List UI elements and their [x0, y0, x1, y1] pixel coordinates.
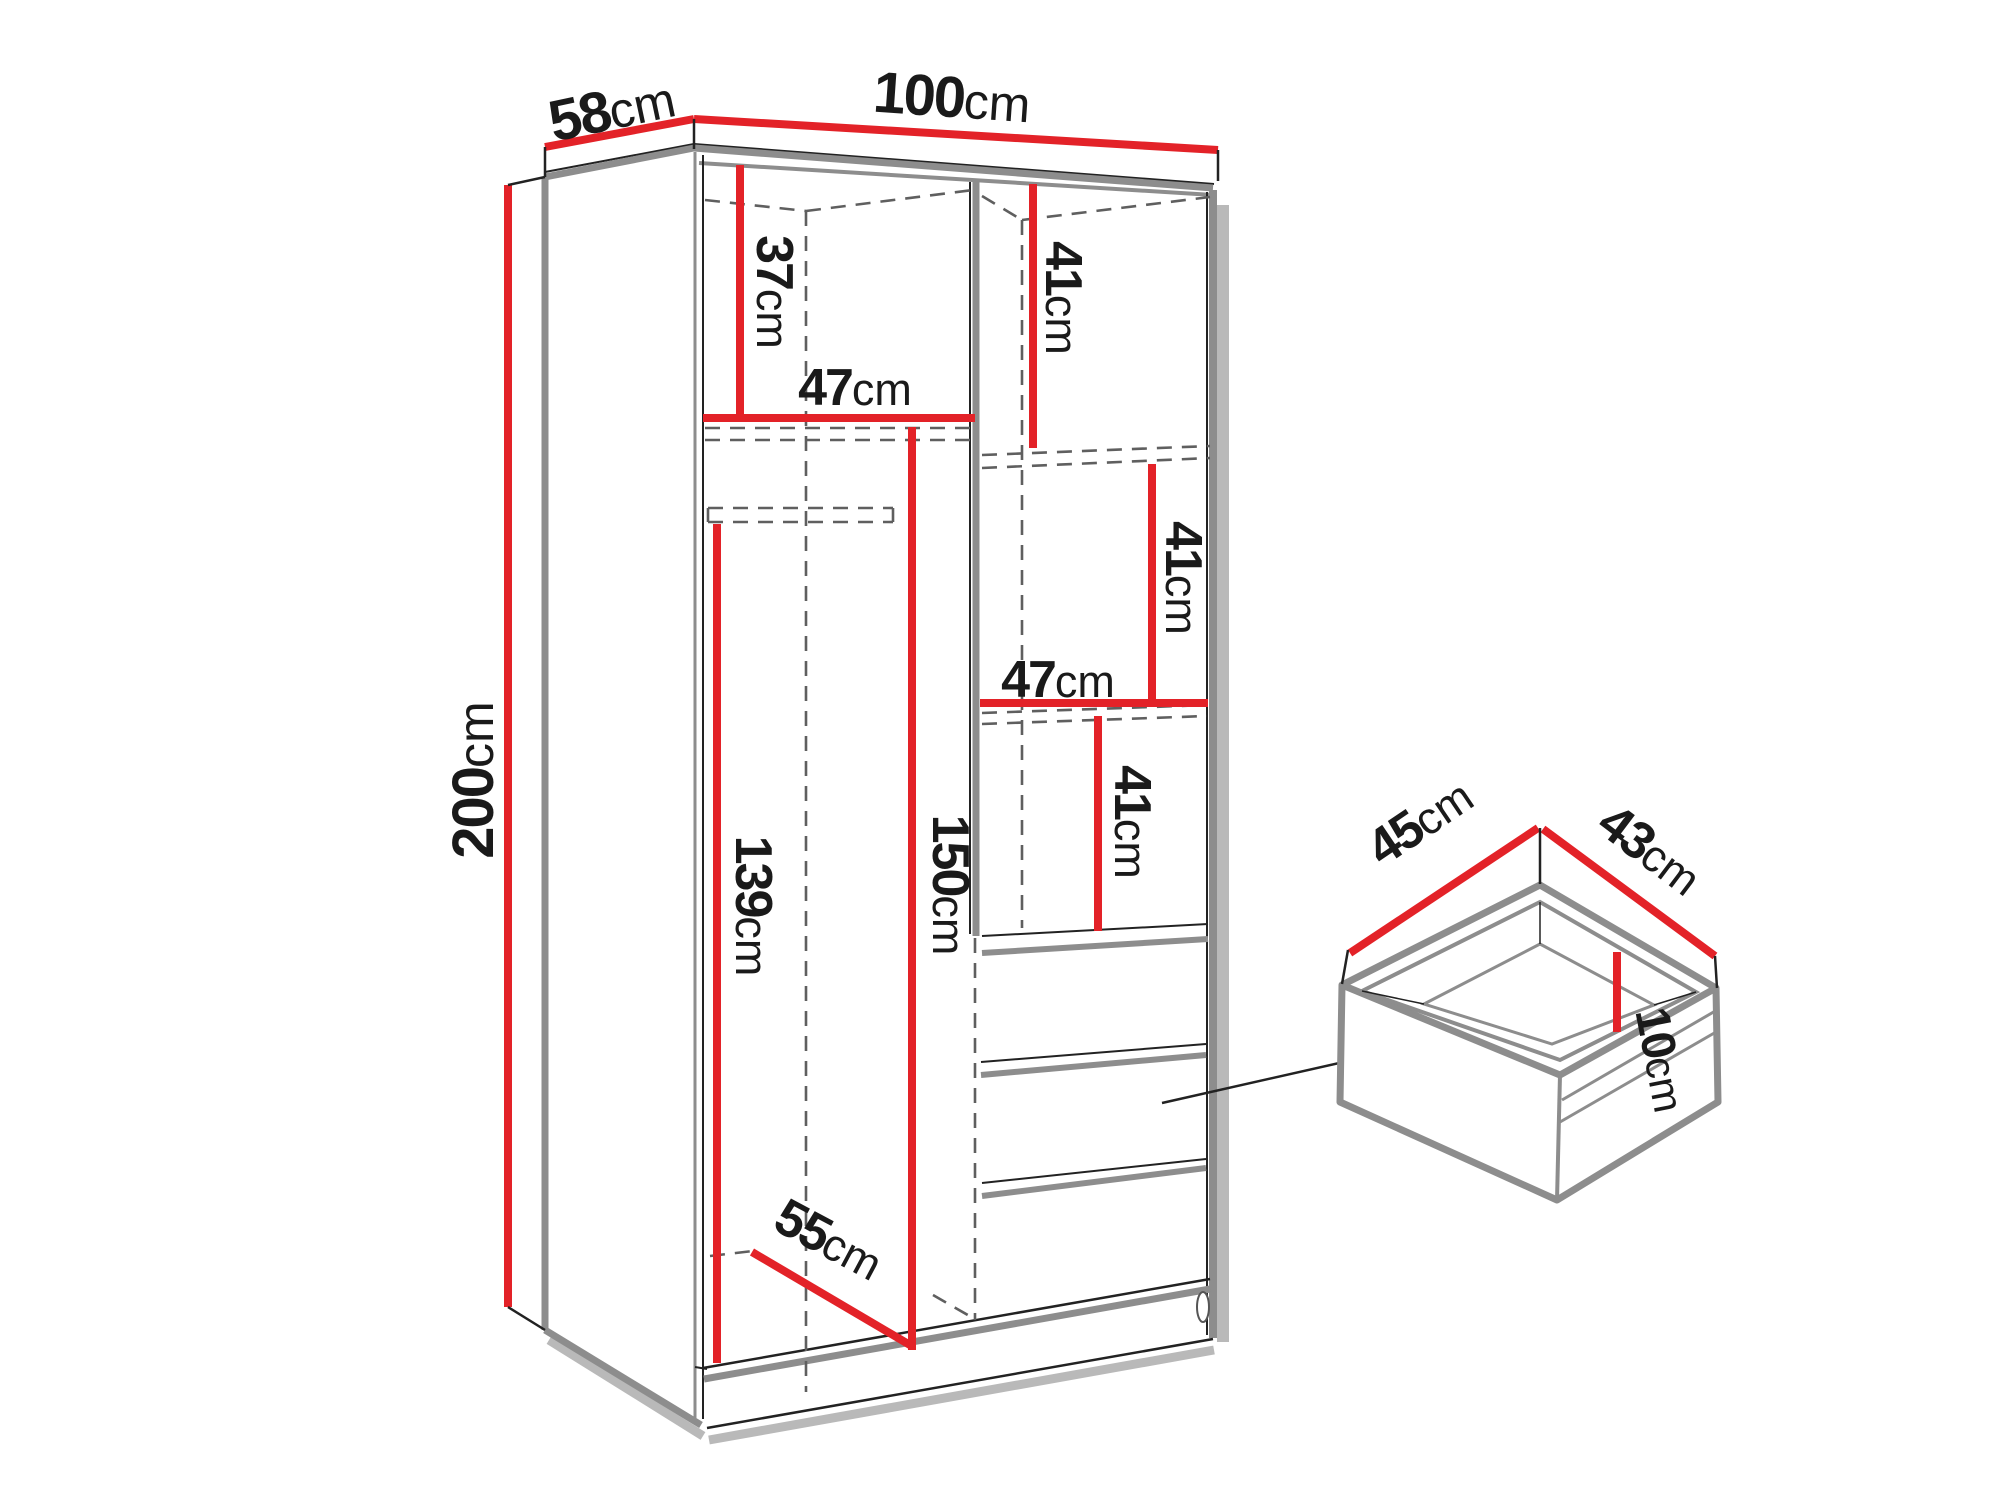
dashed-top-right-back-edge2	[1022, 197, 1210, 220]
dim-unit: cm	[1105, 819, 1156, 879]
dashed-top-left-back-edge2	[806, 190, 973, 211]
dim-label-right-shelf-47: 47cm	[1001, 654, 1115, 706]
dim-label-right-low-41: 41cm	[1106, 765, 1158, 879]
red-dimension-lines	[508, 119, 1218, 1363]
dim-value: 200	[441, 768, 506, 859]
dimension-ticks	[508, 119, 1218, 1330]
dim-value: 41	[1034, 241, 1092, 295]
dim-unit: cm	[1036, 295, 1087, 355]
top-left-edge	[545, 148, 694, 177]
dim-unit: cm	[1636, 1052, 1693, 1116]
diagram-canvas	[0, 0, 2000, 1500]
dim-value: 47	[1001, 651, 1055, 709]
dim-value: 41	[1154, 521, 1212, 575]
plinth-corner-foot	[1197, 1292, 1209, 1322]
tick-200-top	[508, 177, 545, 185]
dim-value: 150	[921, 815, 979, 896]
floor-front-edge	[703, 1279, 1210, 1368]
left-foot-shadow	[549, 1340, 703, 1436]
dim-value: 41	[1103, 765, 1161, 819]
drawer-divider-2	[982, 1168, 1206, 1196]
dim-label-left-hang-139: 139cm	[727, 836, 779, 977]
dim-label-right-top-41: 41cm	[1037, 241, 1089, 355]
dashed-top-left-back-edge	[705, 200, 806, 211]
tick-drawer-right	[1715, 956, 1717, 988]
furniture-dimension-diagram: 58cm 100cm 200cm 37cm 47cm 41cm 41cm 47c…	[0, 0, 2000, 1500]
dashed-floor-corner-right	[933, 1295, 973, 1318]
dim-value: 100	[871, 60, 966, 131]
dim-unit: cm	[1156, 575, 1207, 635]
dim-value: 139	[724, 836, 782, 917]
dashed-right-shelf1-front	[982, 446, 1210, 455]
dashed-right-shelf1-back	[982, 458, 1210, 468]
dim-label-hanging-150: 150cm	[924, 815, 976, 956]
dim-label-height-200: 200cm	[445, 701, 503, 858]
dim-unit: cm	[726, 916, 777, 976]
left-panel-bottom-edge	[545, 1330, 701, 1425]
dim-label-top-section-37: 37cm	[748, 235, 800, 349]
dim-value: 37	[745, 235, 803, 289]
dim-label-left-shelf-47: 47cm	[798, 362, 912, 414]
drawer-divider-1	[981, 1055, 1206, 1075]
tick-200-bottom	[508, 1307, 545, 1330]
dim-unit: cm	[962, 73, 1032, 134]
dashed-top-right-back-edge	[982, 196, 1022, 220]
dim-unit: cm	[448, 701, 504, 768]
dim-unit: cm	[923, 895, 974, 955]
dim-label-width-100: 100cm	[871, 64, 1032, 133]
dim-unit: cm	[1055, 656, 1115, 707]
drawer-top-shelf-edge	[982, 939, 1208, 953]
drawer-stack	[981, 924, 1208, 1196]
dim-unit: cm	[747, 289, 798, 349]
dim-label-right-mid-41: 41cm	[1157, 521, 1209, 635]
plinth-bottom-edge	[707, 1339, 1213, 1428]
dim-unit: cm	[852, 364, 912, 415]
dim-value: 47	[798, 359, 852, 417]
